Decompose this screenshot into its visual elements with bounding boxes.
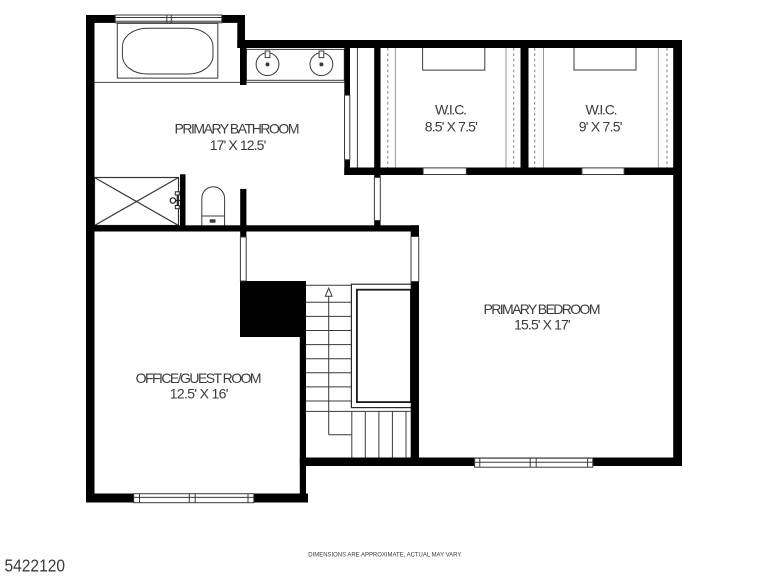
svg-text:17' X 12.5': 17' X 12.5' [210,137,267,153]
svg-text:12.5' X 16': 12.5' X 16' [170,385,229,401]
svg-text:W.I.C.: W.I.C. [435,102,467,118]
svg-text:15.5' X 17': 15.5' X 17' [514,316,571,332]
svg-text:DIMENSIONS ARE APPROXIMATE, AC: DIMENSIONS ARE APPROXIMATE, ACTUAL MAY V… [308,552,461,559]
svg-text:5422120: 5422120 [5,556,66,576]
svg-text:PRIMARY BATHROOM: PRIMARY BATHROOM [175,120,300,136]
svg-text:PRIMARY BEDROOM: PRIMARY BEDROOM [484,301,601,317]
svg-text:W.I.C.: W.I.C. [586,102,618,118]
svg-text:9' X 7.5': 9' X 7.5' [579,118,623,134]
svg-text:8.5' X 7.5': 8.5' X 7.5' [425,118,478,134]
svg-text:OFFICE/GUEST ROOM: OFFICE/GUEST ROOM [136,370,262,386]
